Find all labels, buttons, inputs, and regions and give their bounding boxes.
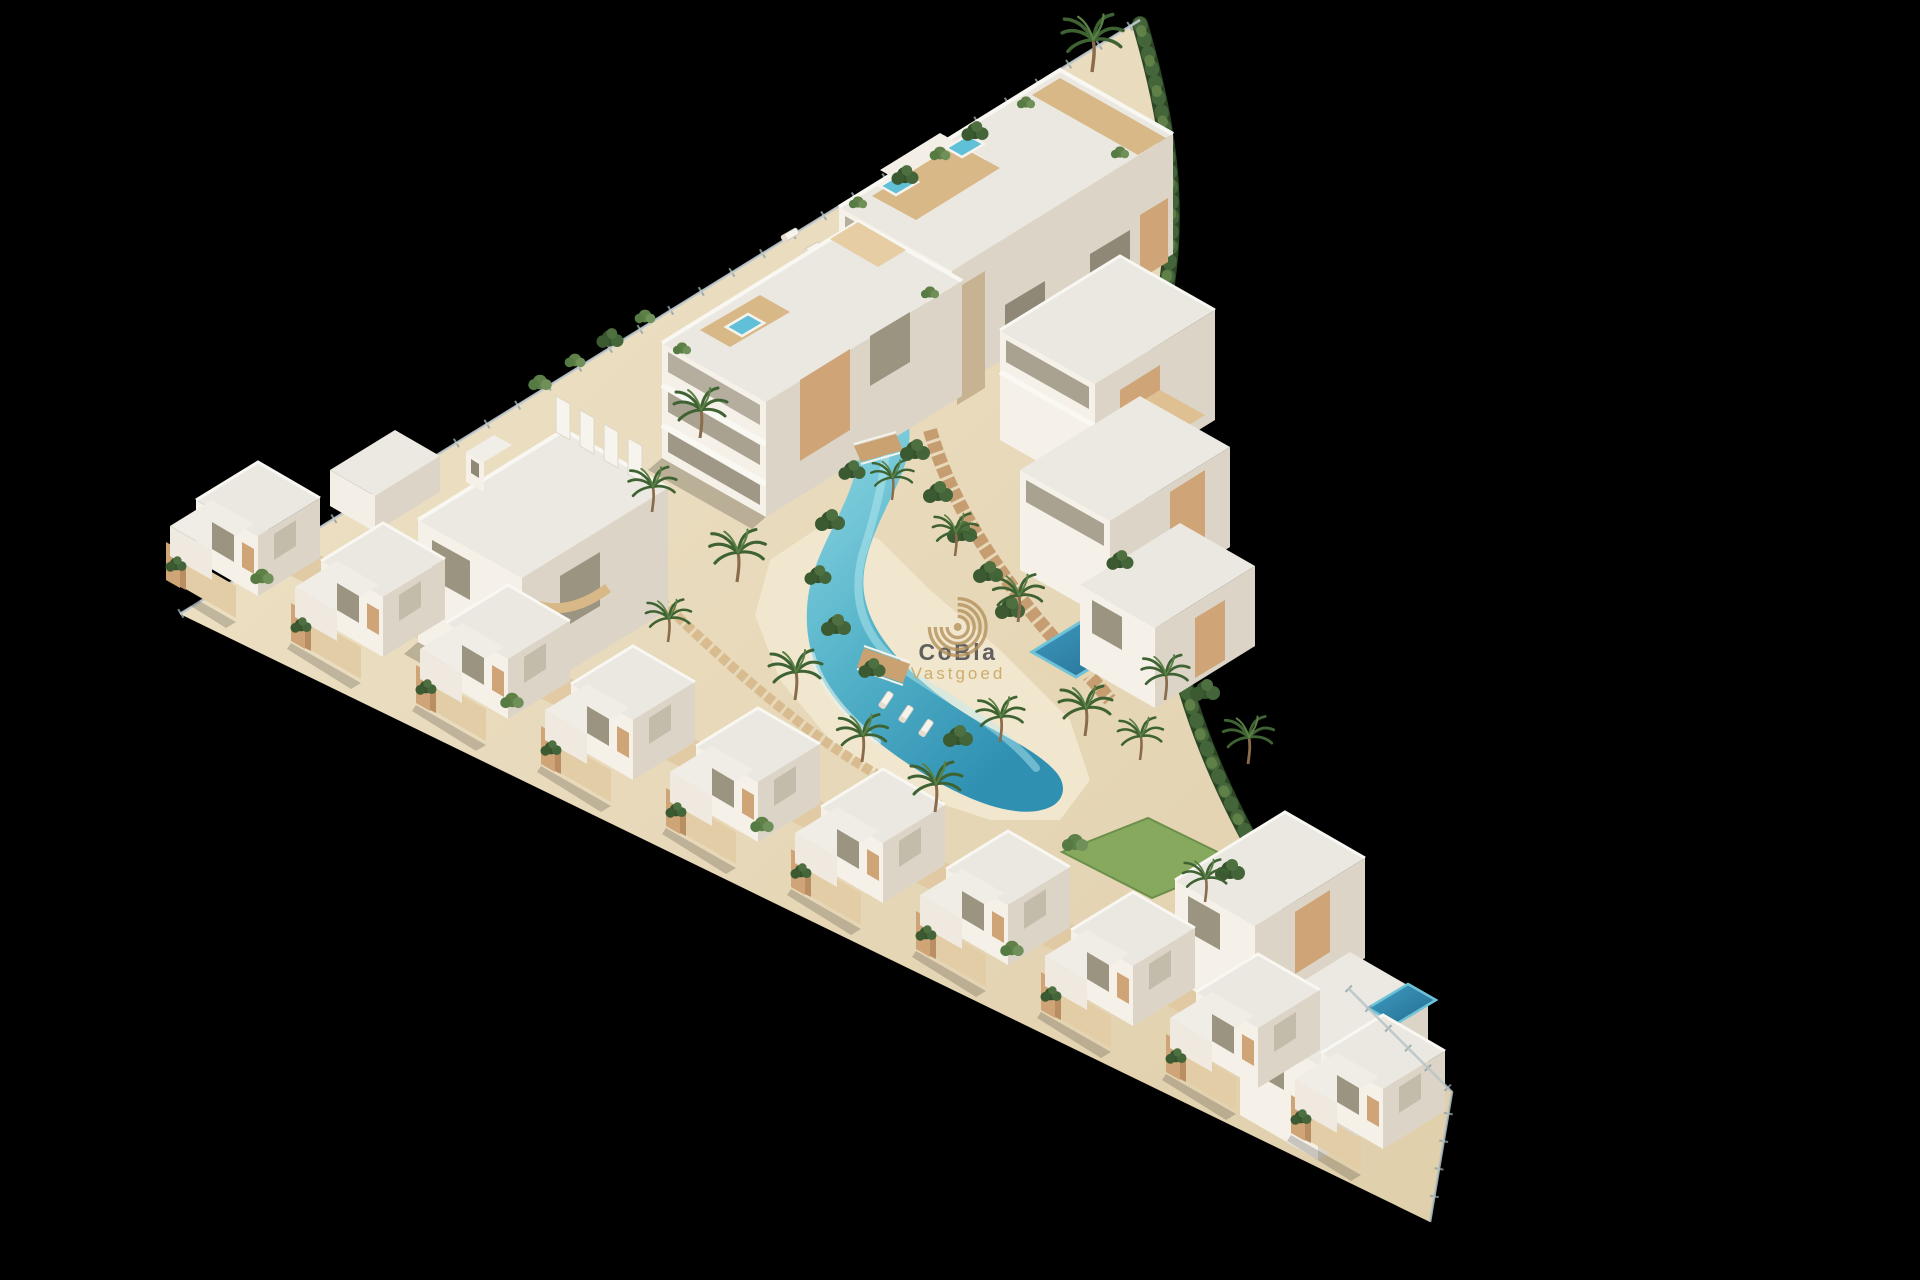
- aerial-render-stage: CoBla Vastgoed: [0, 0, 1920, 1280]
- arch-fin: [628, 438, 642, 482]
- arch-fin: [556, 396, 570, 440]
- arch-fin: [604, 424, 618, 468]
- arch-fin: [580, 410, 594, 454]
- aerial-render: [0, 0, 1920, 1280]
